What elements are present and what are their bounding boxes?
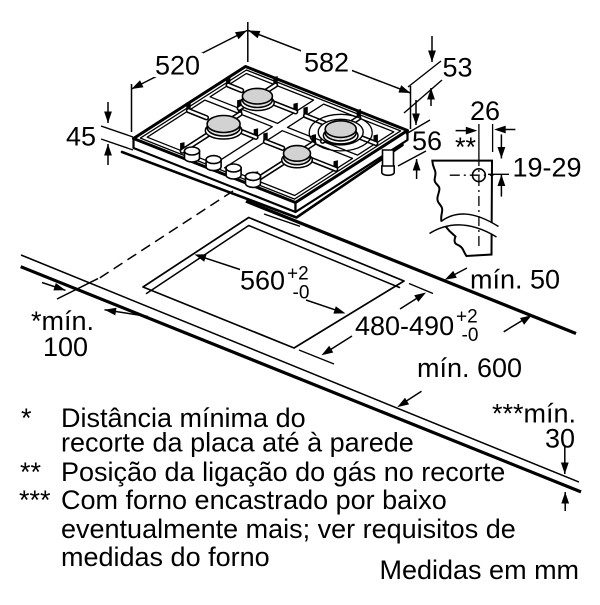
svg-text:582: 582 bbox=[304, 47, 349, 77]
svg-text:520: 520 bbox=[155, 51, 200, 81]
svg-text:**: ** bbox=[455, 132, 477, 162]
svg-text:Medidas em mm: Medidas em mm bbox=[380, 555, 580, 585]
svg-text:eventualmente mais; ver requis: eventualmente mais; ver requisitos de bbox=[61, 514, 516, 544]
svg-text:-0: -0 bbox=[293, 283, 310, 304]
svg-text:+2: +2 bbox=[287, 263, 309, 284]
svg-text:recorte da placa até à parede: recorte da placa até à parede bbox=[61, 428, 414, 458]
svg-text:100: 100 bbox=[43, 332, 88, 362]
svg-text:480-490: 480-490 bbox=[355, 311, 454, 341]
svg-text:***: *** bbox=[19, 485, 51, 515]
svg-text:53: 53 bbox=[443, 52, 473, 82]
svg-text:mín. 50: mín. 50 bbox=[470, 265, 560, 295]
svg-text:*: * bbox=[21, 403, 32, 433]
svg-text:Posição da ligação do gás no r: Posição da ligação do gás no recorte bbox=[61, 457, 505, 487]
svg-text:**: ** bbox=[20, 457, 42, 487]
svg-text:45: 45 bbox=[66, 122, 96, 152]
svg-text:Com forno encastrado por baixo: Com forno encastrado por baixo bbox=[61, 485, 447, 515]
svg-text:560: 560 bbox=[240, 265, 285, 295]
svg-text:30: 30 bbox=[545, 423, 575, 453]
svg-text:19-29: 19-29 bbox=[513, 153, 582, 183]
svg-text:-0: -0 bbox=[462, 325, 479, 346]
svg-text:56: 56 bbox=[412, 126, 442, 156]
svg-text:mín. 600: mín. 600 bbox=[417, 353, 522, 383]
svg-text:medidas do forno: medidas do forno bbox=[61, 542, 270, 572]
svg-text:26: 26 bbox=[470, 96, 500, 126]
